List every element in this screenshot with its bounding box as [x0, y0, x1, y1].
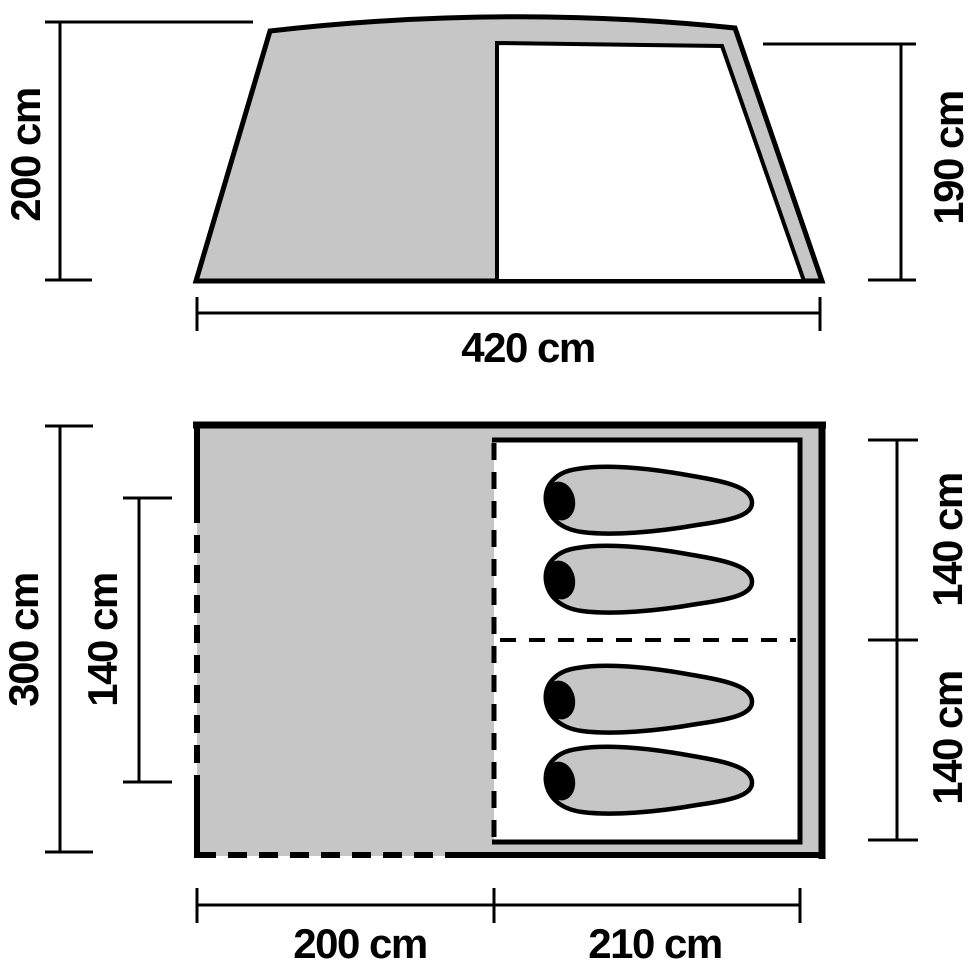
floor-depth-label: 300 cm	[0, 573, 47, 706]
side-left-height-label: 200 cm	[2, 88, 49, 221]
tent-door-panel	[497, 43, 804, 281]
door-opening-label: 140 cm	[79, 573, 126, 706]
cabin-berth-bottom-label: 140 cm	[924, 671, 971, 804]
dimension-side-width: 420 cm	[197, 297, 820, 371]
diagram-canvas: 200 cm 190 cm 420 cm	[0, 0, 980, 980]
cabin-berth-top-label: 140 cm	[924, 473, 971, 606]
vestibule-width-label: 200 cm	[293, 920, 426, 967]
dimension-door-opening: 140 cm	[79, 498, 172, 782]
tent-side-view: 200 cm 190 cm 420 cm	[2, 17, 972, 371]
side-width-label: 420 cm	[461, 324, 594, 371]
dimension-floor-widths: 200 cm 210 cm	[197, 888, 800, 967]
tent-dimension-diagram: 200 cm 190 cm 420 cm	[0, 0, 980, 980]
tent-floor-plan: 300 cm 140 cm 140 cm 140 cm 200 cm 210 c…	[0, 422, 971, 967]
side-right-height-label: 190 cm	[925, 91, 972, 224]
cabin-width-label: 210 cm	[588, 920, 721, 967]
dimension-cabin-berths: 140 cm 140 cm	[868, 440, 971, 840]
